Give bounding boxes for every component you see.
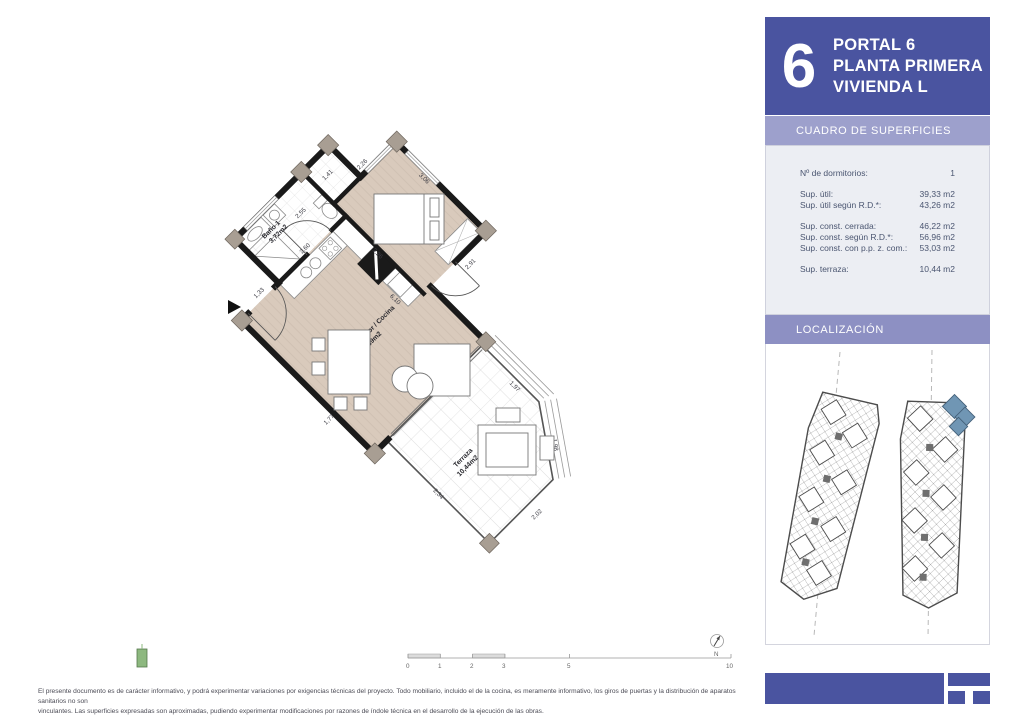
- row-value: 56,96 m2: [920, 232, 955, 243]
- surfaces-table: Nº de dormitorios:1 Sup. útil:39,33 m2 S…: [765, 145, 990, 315]
- row-value: 39,33 m2: [920, 189, 955, 200]
- row-value: 43,26 m2: [920, 200, 955, 211]
- floor-plan-canvas: Baño 1 3,72m2 Dormitorio 1 11,02m2 Salón…: [0, 0, 765, 724]
- brand-logo-icon: [973, 691, 990, 704]
- row-label: Sup. terraza:: [800, 264, 849, 275]
- sheet-header: 6 PORTAL 6 PLANTA PRIMERA VIVIENDA L: [765, 17, 990, 115]
- table-row: Sup. const. cerrada:46,22 m2: [800, 221, 955, 232]
- disclaimer-line-2: vinculantes. Las superficies expresadas …: [38, 707, 750, 717]
- row-label: Sup. const. con p.p. z. com.:: [800, 243, 907, 254]
- scale-tick-0: 0: [406, 663, 410, 670]
- row-value: 10,44 m2: [920, 264, 955, 275]
- scale-tick-1: 1: [438, 663, 442, 670]
- table-row: Sup. útil:39,33 m2: [800, 189, 955, 200]
- site-building-left: [771, 391, 884, 607]
- header-floor: PLANTA PRIMERA: [833, 57, 983, 76]
- table-row: Sup. útil según R.D.*:43,26 m2: [800, 200, 955, 211]
- brand-logo-icon: [948, 691, 965, 704]
- header-dwelling: VIVIENDA L: [833, 78, 983, 97]
- location-panel: [765, 344, 990, 645]
- scale-tick-10: 10: [726, 663, 734, 670]
- row-value: 53,03 m2: [920, 243, 955, 254]
- green-marker-icon: [137, 644, 147, 667]
- scale-bar: 0 1 2 3 5 10: [406, 654, 734, 670]
- table-row: Sup. terraza:10,44 m2: [800, 264, 955, 275]
- disclaimer-line-1: El presente documento es de carácter inf…: [38, 687, 750, 707]
- north-label: N: [714, 651, 719, 658]
- header-portal: PORTAL 6: [833, 36, 983, 55]
- dim-terrace-se: 2,02: [530, 507, 544, 521]
- north-arrow-icon: [711, 635, 724, 648]
- table-row: Nº de dormitorios:1: [800, 168, 955, 179]
- footer-brand-bar: [765, 673, 944, 704]
- row-label: Sup. const. según R.D.*:: [800, 232, 893, 243]
- row-label: Sup. útil según R.D.*:: [800, 200, 881, 211]
- row-label: Nº de dormitorios:: [800, 168, 868, 179]
- entry-marker-icon: [228, 300, 241, 314]
- scale-tick-3: 3: [502, 663, 506, 670]
- table-row: Sup. const. con p.p. z. com.:53,03 m2: [800, 243, 955, 254]
- scale-tick-2: 2: [470, 663, 474, 670]
- disclaimer-text: El presente documento es de carácter inf…: [38, 687, 750, 718]
- site-plan: [766, 344, 989, 643]
- row-value: 46,22 m2: [920, 221, 955, 232]
- brand-logo-icon: [948, 673, 990, 686]
- row-value: 1: [950, 168, 955, 179]
- scale-tick-5: 5: [567, 663, 571, 670]
- row-label: Sup. const. cerrada:: [800, 221, 876, 232]
- dim-bedroom-se: 2,91: [464, 257, 478, 271]
- location-band-title: LOCALIZACIÓN: [765, 315, 990, 344]
- apartment-plan: Baño 1 3,72m2 Dormitorio 1 11,02m2 Salón…: [182, 98, 661, 577]
- portal-big-number: 6: [765, 36, 833, 98]
- row-label: Sup. útil:: [800, 189, 833, 200]
- surfaces-band-title: CUADRO DE SUPERFICIES: [765, 116, 990, 145]
- table-row: Sup. const. según R.D.*:56,96 m2: [800, 232, 955, 243]
